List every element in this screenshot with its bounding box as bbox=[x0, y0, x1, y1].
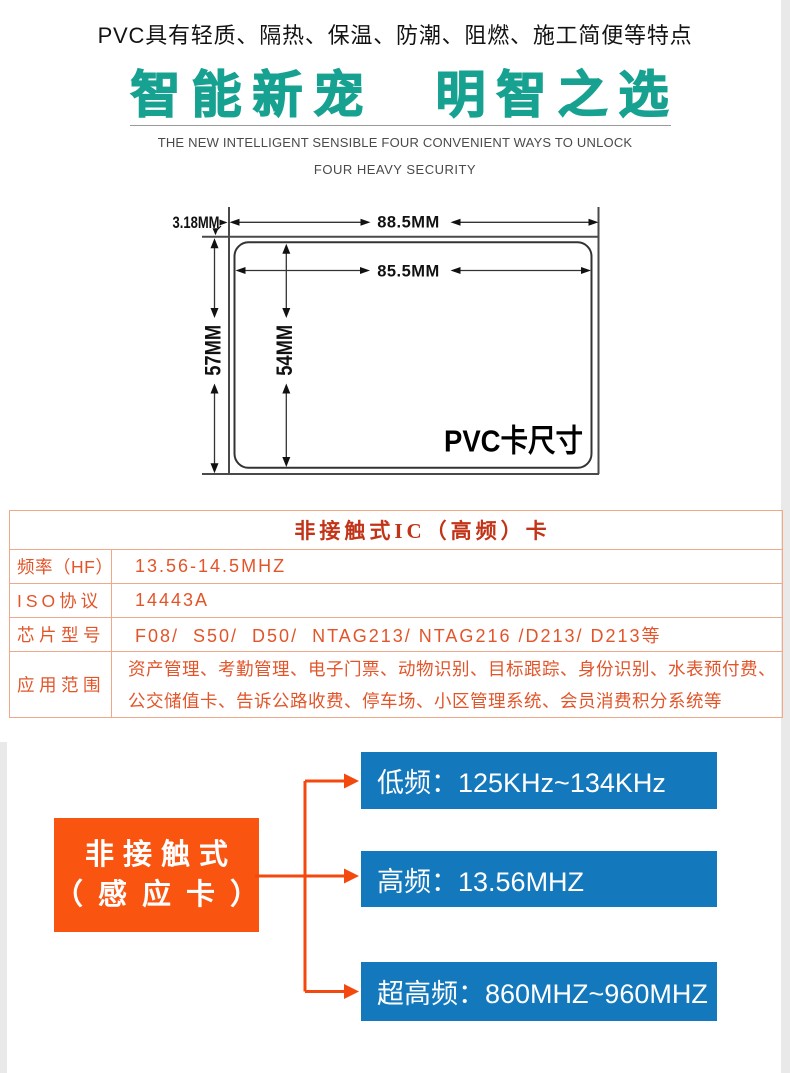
svg-text:PVC卡尺寸: PVC卡尺寸 bbox=[444, 424, 583, 459]
svg-text:54MM: 54MM bbox=[272, 325, 297, 376]
svg-text:3.18MM: 3.18MM bbox=[173, 213, 220, 232]
svg-text:57MM: 57MM bbox=[201, 325, 226, 376]
svg-text:88.5MM: 88.5MM bbox=[377, 214, 440, 232]
svg-text:85.5MM: 85.5MM bbox=[377, 263, 440, 281]
